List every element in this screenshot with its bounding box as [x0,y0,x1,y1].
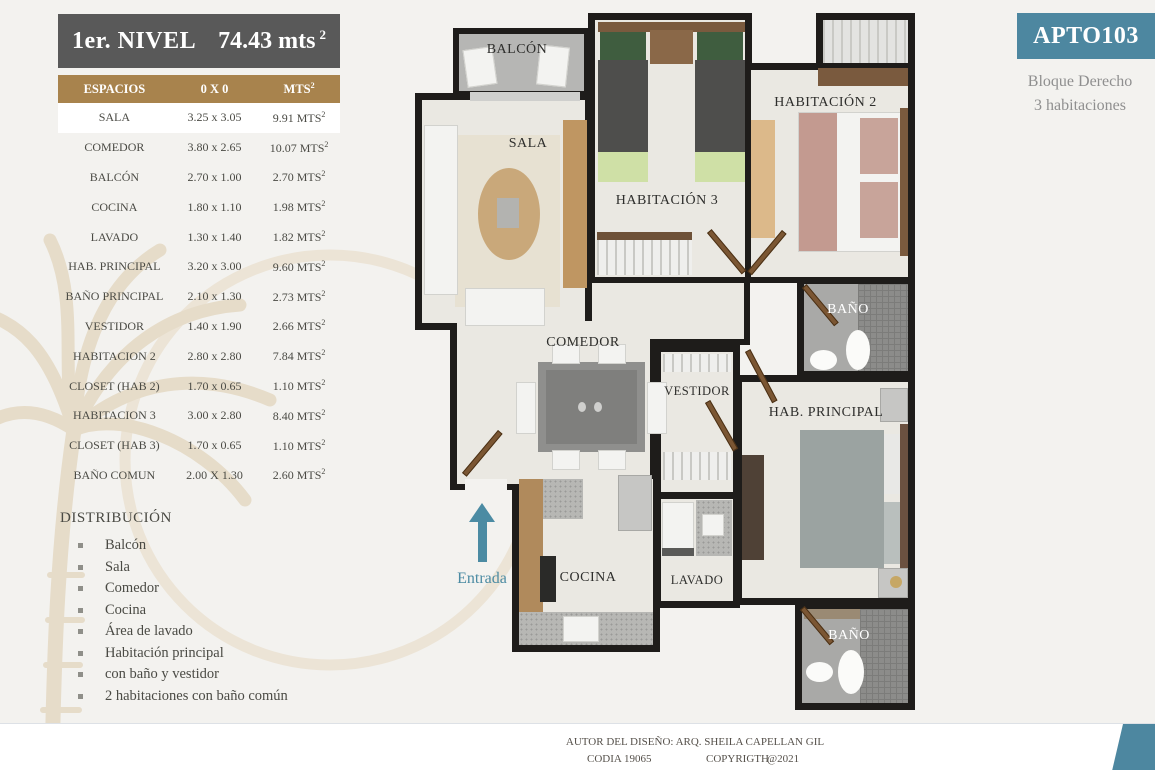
label-comedor: COMEDOR [523,335,643,351]
hab3-bed2-blanket [695,60,745,152]
bullet-icon [78,672,83,677]
hab2-headboard [900,108,908,256]
cell-mts: 9.91 MTS2 [258,110,340,126]
bullet-icon [78,694,83,699]
lavado-sink [702,514,724,536]
balcony-sliding-door [470,92,580,101]
distribution-title: DISTRIBUCIÓN [60,510,288,527]
cell-dims: 2.00 X 1.30 [171,468,258,483]
cell-espacio: COMEDOR [58,140,171,155]
table-row: BALCÓN2.70 x 1.002.70 MTS2 [58,163,340,193]
cell-espacio: BALCÓN [58,170,171,185]
cell-espacio: BAÑO COMUN [58,468,171,483]
areas-table-body: SALA3.25 x 3.059.91 MTS2COMEDOR3.80 x 2.… [58,103,340,490]
info-panel: 1er. NIVEL 74.43 mts2 ESPACIOS 0 X 0 MTS… [0,0,400,770]
distribution-item-label: Cocina [105,600,146,622]
footer: AUTOR DEL DISEÑO: ARQ. SHEILA CAPELLAN G… [0,723,1155,770]
bano-bottom-tile [860,609,908,703]
vestidor-shelf-top [663,354,731,372]
bano-top-sink [810,350,837,370]
cell-dims: 2.10 x 1.30 [171,289,258,304]
cocina-counter-top [543,479,583,519]
cocina-sink [563,616,599,642]
label-hab2: HABITACIÓN 2 [753,95,898,111]
bullet-icon [78,608,83,613]
distribution-item: Sala [60,557,288,579]
cell-espacio: VESTIDOR [58,319,171,334]
cell-dims: 3.80 x 2.65 [171,140,258,155]
cell-dims: 1.80 x 1.10 [171,200,258,215]
cell-espacio: CLOSET (HAB 3) [58,438,171,453]
apartment-block: Bloque Derecho [1005,70,1155,94]
footer-year: @2021 [767,753,799,765]
comedor-chair [516,382,536,434]
floor-closet-top [823,20,908,63]
cocina-fridge [618,475,652,531]
bullet-icon [78,651,83,656]
label-balcon: BALCÓN [462,42,572,58]
habp-lamp [890,576,902,588]
cell-dims: 1.70 x 0.65 [171,379,258,394]
cell-mts: 8.40 MTS2 [258,408,340,424]
bullet-icon [78,629,83,634]
label-lavado: LAVADO [656,573,738,588]
table-row: HABITACION 22.80 x 2.807.84 MTS2 [58,341,340,371]
hab3-closet [597,232,692,275]
level-name: 1er. NIVEL [72,28,196,55]
level-title-bar: 1er. NIVEL 74.43 mts2 [58,14,340,68]
entrance-opening [465,479,507,491]
label-cocina: COCINA [538,570,638,586]
sala-sofa [424,125,458,295]
table-row: VESTIDOR1.40 x 1.902.66 MTS2 [58,312,340,342]
footer-author: AUTOR DEL DISEÑO: ARQ. SHEILA CAPELLAN G… [520,736,870,748]
cell-espacio: SALA [58,110,171,125]
cell-dims: 2.80 x 2.80 [171,349,258,364]
lavado-washer-front [662,548,694,556]
apartment-subtitle: Bloque Derecho 3 habitaciones [1005,70,1155,118]
table-row: CLOSET (HAB 2)1.70 x 0.651.10 MTS2 [58,371,340,401]
table-row: HABITACION 33.00 x 2.808.40 MTS2 [58,401,340,431]
distribution-item: Área de lavado [60,621,288,643]
label-hab3: HABITACIÓN 3 [597,193,737,209]
cell-mts: 1.82 MTS2 [258,229,340,245]
distribution-list: DISTRIBUCIÓN BalcónSalaComedorCocinaÁrea… [60,510,288,707]
cell-mts: 2.60 MTS2 [258,467,340,483]
header-espacios: ESPACIOS [58,82,171,97]
cell-espacio: LAVADO [58,230,171,245]
table-row: CLOSET (HAB 3)1.70 x 0.651.10 MTS2 [58,431,340,461]
cell-espacio: CLOSET (HAB 2) [58,379,171,394]
bano-top-toilet [846,330,870,370]
comedor-table-dot [594,402,602,412]
distribution-item-label: Habitación principal [105,643,224,665]
distribution-item-label: Área de lavado [105,621,193,643]
bullet-icon [78,543,83,548]
habp-bed-blanket [800,430,884,568]
label-bano-top: BAÑO [808,302,888,318]
distribution-item: 2 habitaciones con baño común [60,686,288,708]
label-hab-principal: HAB. PRINCIPAL [746,405,906,421]
cell-mts: 2.73 MTS2 [258,289,340,305]
hab2-desk [751,120,775,238]
hab3-nightstand [650,30,693,64]
cell-dims: 1.40 x 1.90 [171,319,258,334]
bullet-icon [78,565,83,570]
bullet-icon [78,586,83,591]
cell-mts: 1.10 MTS2 [258,378,340,394]
distribution-item-label: 2 habitaciones con baño común [105,686,288,708]
cell-espacio: COCINA [58,200,171,215]
table-row: SALA3.25 x 3.059.91 MTS2 [58,103,340,133]
areas-table-header: ESPACIOS 0 X 0 MTS2 [58,75,340,103]
cell-mts: 1.98 MTS2 [258,199,340,215]
cell-mts: 2.70 MTS2 [258,169,340,185]
cell-mts: 2.66 MTS2 [258,318,340,334]
distribution-item: Cocina [60,600,288,622]
distribution-item: Comedor [60,578,288,600]
habp-headboard [900,424,908,574]
table-row: HAB. PRINCIPAL3.20 x 3.009.60 MTS2 [58,252,340,282]
cell-dims: 2.70 x 1.00 [171,170,258,185]
comedor-chair [552,450,580,470]
footer-codia: CODIA 19065 [587,753,651,765]
cell-dims: 3.00 x 2.80 [171,408,258,423]
distribution-item: Habitación principal [60,643,288,665]
hab3-bed1-foot [598,152,648,182]
table-row: COMEDOR3.80 x 2.6510.07 MTS2 [58,133,340,163]
distribution-item-label: Sala [105,557,130,579]
flyer-page: 1er. NIVEL 74.43 mts2 ESPACIOS 0 X 0 MTS… [0,0,1155,770]
cell-dims: 3.20 x 3.00 [171,259,258,274]
header-dims: 0 X 0 [171,82,258,97]
hab3-bed1-blanket [598,60,648,152]
bano-bottom-sink [806,662,833,682]
cell-mts: 10.07 MTS2 [258,140,340,156]
cell-mts: 9.60 MTS2 [258,259,340,275]
footer-copyright: COPYRIGTH [706,753,769,765]
bano-bottom-toilet [838,650,864,694]
hab3-bed1-pillow [600,32,646,60]
table-row: COCINA1.80 x 1.101.98 MTS2 [58,192,340,222]
sala-table-tray [497,198,519,228]
header-mts: MTS2 [258,81,340,97]
distribution-item-label: Balcón [105,535,146,557]
label-vestidor: VESTIDOR [656,384,738,399]
sala-loveseat [465,288,545,326]
hab2-pillow [860,118,898,174]
distribution-item: Balcón [60,535,288,557]
hab3-bed2-pillow [697,32,743,60]
cell-dims: 3.25 x 3.05 [171,110,258,125]
vestidor-shelf-bottom [663,452,731,480]
cell-espacio: HABITACION 3 [58,408,171,423]
level-area: 74.43 mts2 [218,27,326,55]
cell-mts: 7.84 MTS2 [258,348,340,364]
hab2-bed-runner [799,113,837,251]
table-row: LAVADO1.30 x 1.401.82 MTS2 [58,222,340,252]
cell-espacio: BAÑO PRINCIPAL [58,289,171,304]
hab2-pillow [860,182,898,238]
apartment-code-badge: APTO103 [1017,13,1155,59]
entrance-arrow-shaft [478,520,487,562]
distribution-item-label: con baño y vestidor [105,664,219,686]
cell-dims: 1.70 x 0.65 [171,438,258,453]
label-sala: SALA [478,136,578,152]
hab3-bed2-foot [695,152,745,182]
cell-espacio: HABITACION 2 [58,349,171,364]
habp-closet [742,455,764,560]
label-bano-bottom: BAÑO [809,628,889,644]
distribution-item: con baño y vestidor [60,664,288,686]
table-row: BAÑO COMUN2.00 X 1.302.60 MTS2 [58,461,340,491]
comedor-table-top [546,370,637,444]
cell-mts: 1.10 MTS2 [258,438,340,454]
footer-corner-shape [1105,724,1155,770]
distribution-item-label: Comedor [105,578,159,600]
comedor-chair [598,450,626,470]
label-entrada: Entrada [436,570,528,588]
hab2-closet-strip [818,68,908,86]
apartment-rooms: 3 habitaciones [1005,94,1155,118]
cell-espacio: HAB. PRINCIPAL [58,259,171,274]
comedor-table-dot [578,402,586,412]
areas-table: ESPACIOS 0 X 0 MTS2 SALA3.25 x 3.059.91 … [58,75,340,490]
cell-dims: 1.30 x 1.40 [171,230,258,245]
table-row: BAÑO PRINCIPAL2.10 x 1.302.73 MTS2 [58,282,340,312]
